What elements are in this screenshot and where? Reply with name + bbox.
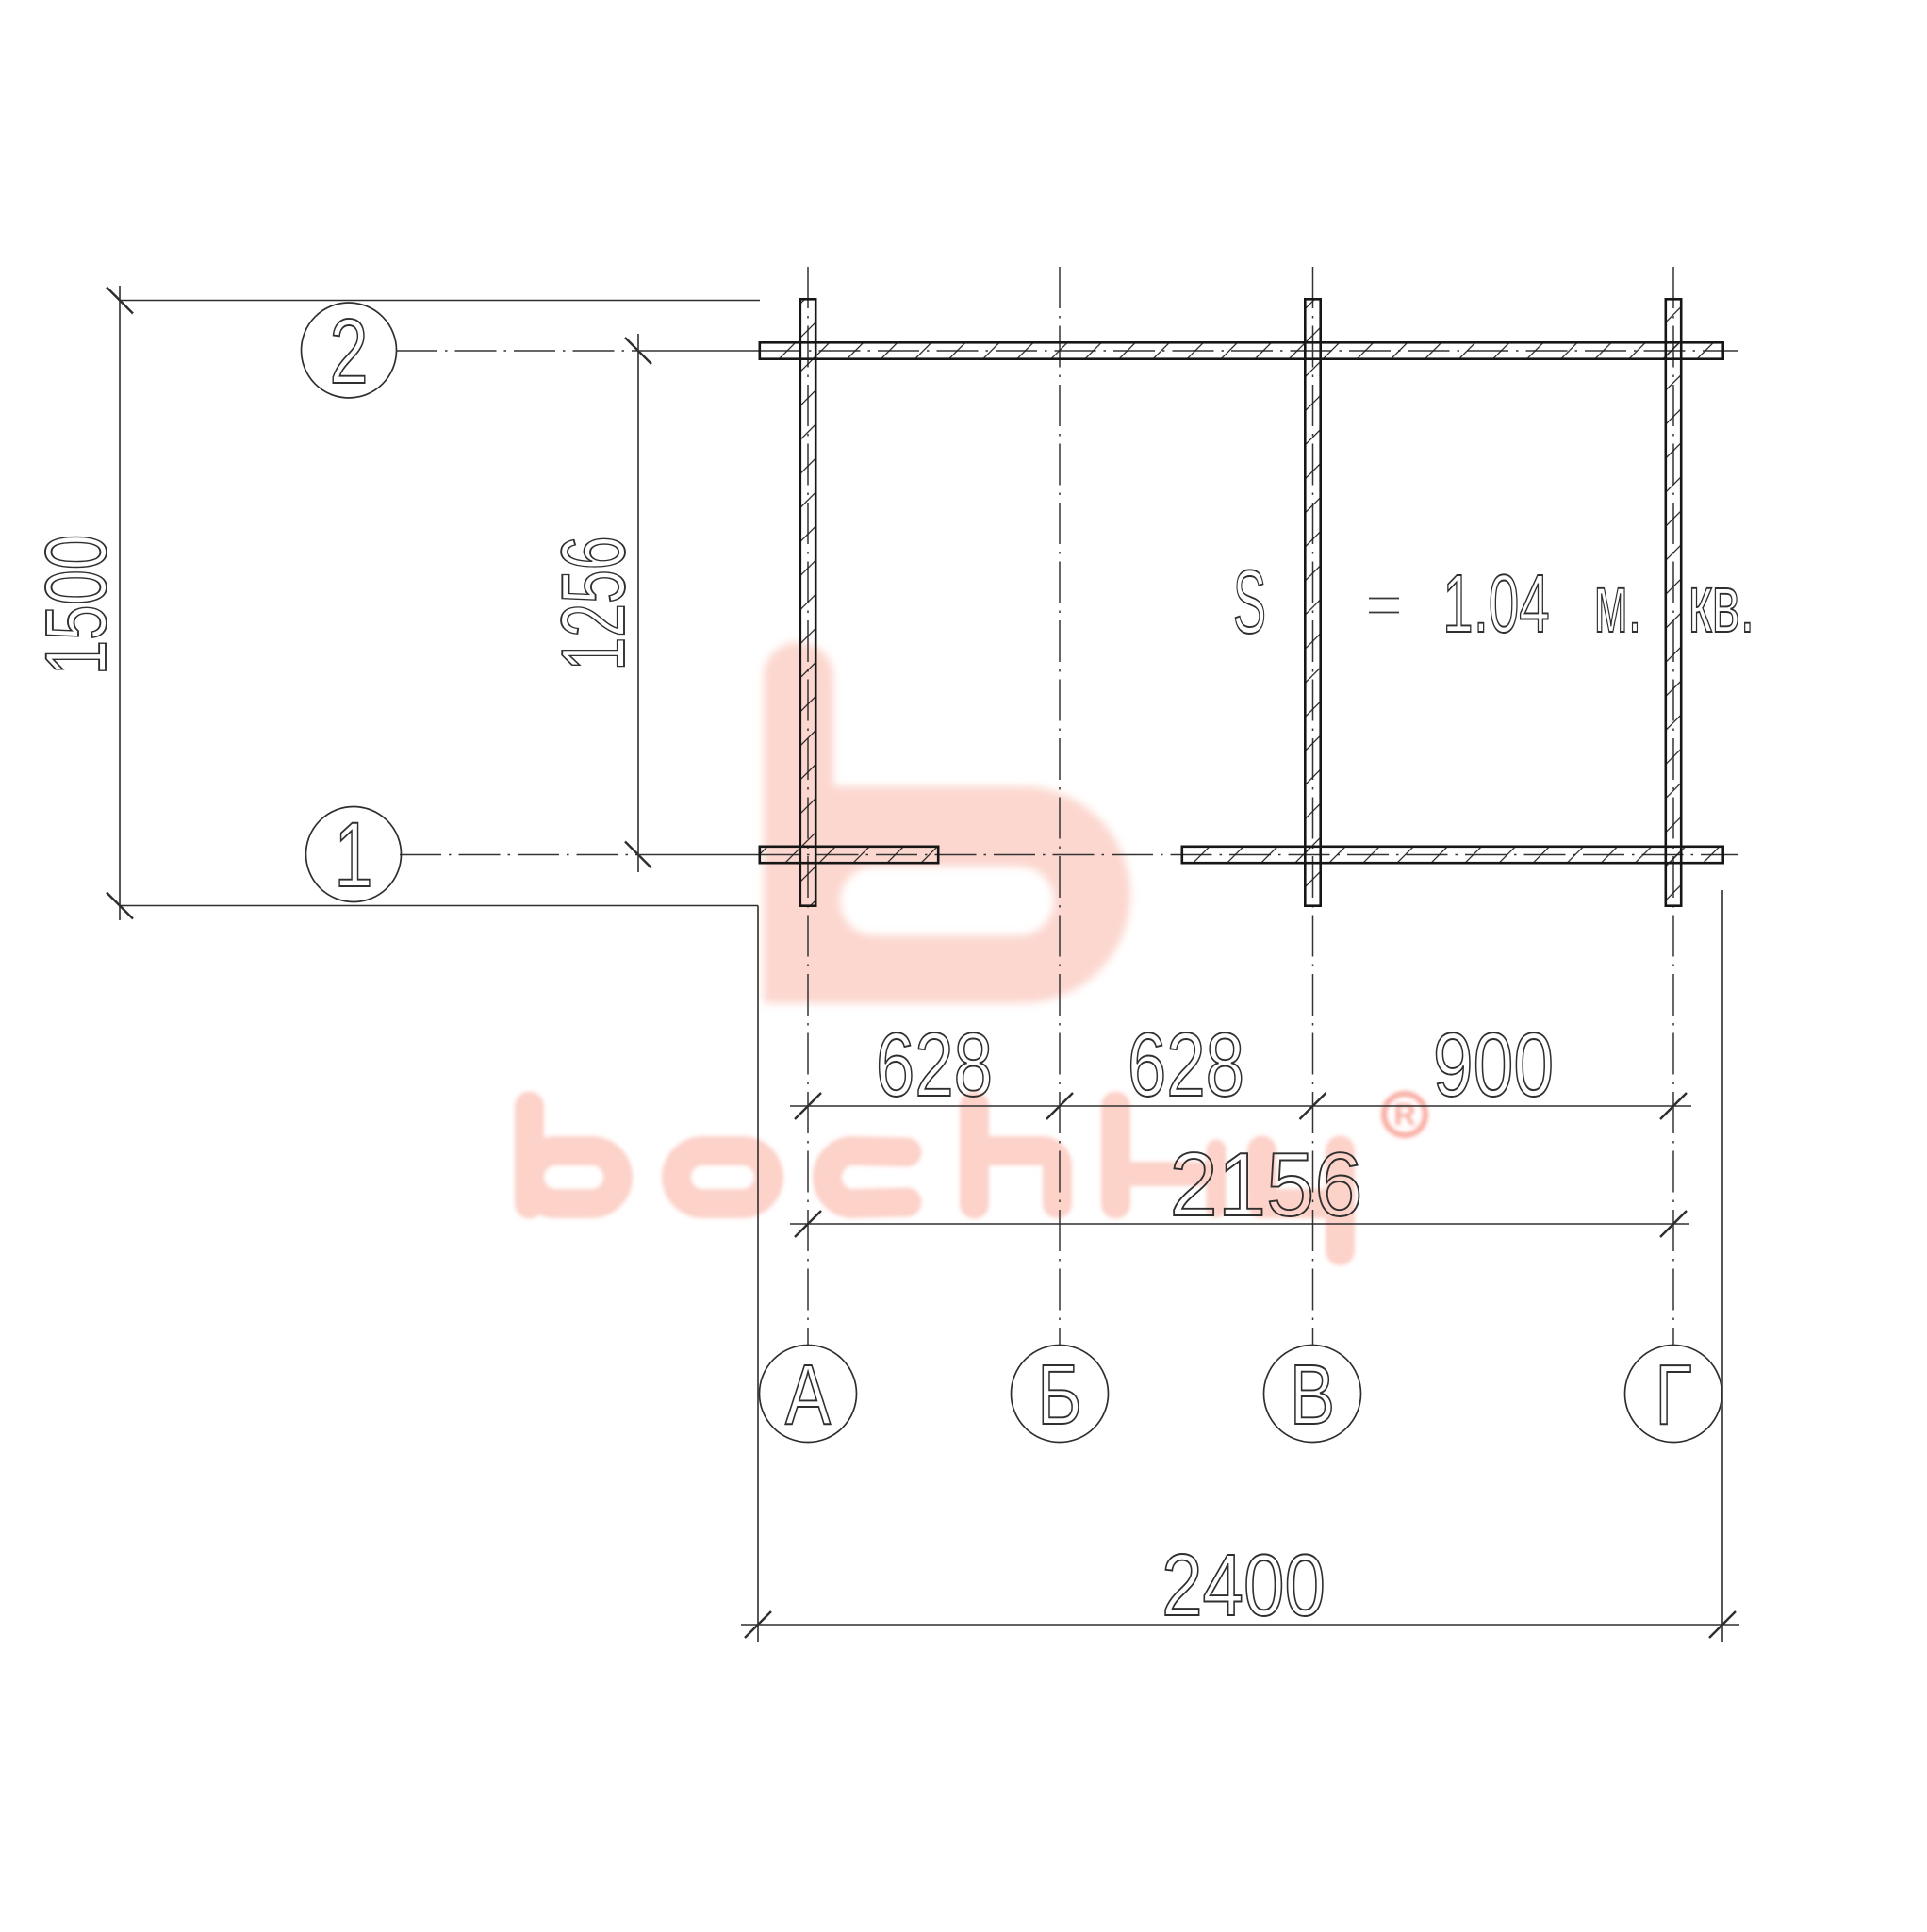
svg-text:2156: 2156 bbox=[1170, 1133, 1363, 1234]
svg-text:628: 628 bbox=[876, 1015, 993, 1115]
svg-text:R: R bbox=[1393, 1098, 1415, 1131]
svg-text:900: 900 bbox=[1433, 1015, 1554, 1115]
svg-text:1500: 1500 bbox=[28, 535, 125, 675]
svg-text:S: S bbox=[1233, 552, 1266, 652]
svg-text:Б: Б bbox=[1037, 1347, 1081, 1442]
svg-text:1: 1 bbox=[335, 804, 373, 906]
svg-text:кв.: кв. bbox=[1688, 558, 1754, 650]
svg-text:2: 2 bbox=[330, 301, 369, 403]
svg-text:В: В bbox=[1290, 1347, 1335, 1442]
svg-text:Г: Г bbox=[1655, 1347, 1692, 1442]
svg-text:А: А bbox=[785, 1347, 832, 1442]
svg-text:1.04: 1.04 bbox=[1442, 557, 1549, 650]
svg-text:1256: 1256 bbox=[543, 536, 644, 670]
svg-text:2400: 2400 bbox=[1161, 1537, 1326, 1635]
svg-text:628: 628 bbox=[1128, 1015, 1244, 1115]
svg-text:м.: м. bbox=[1594, 558, 1641, 650]
